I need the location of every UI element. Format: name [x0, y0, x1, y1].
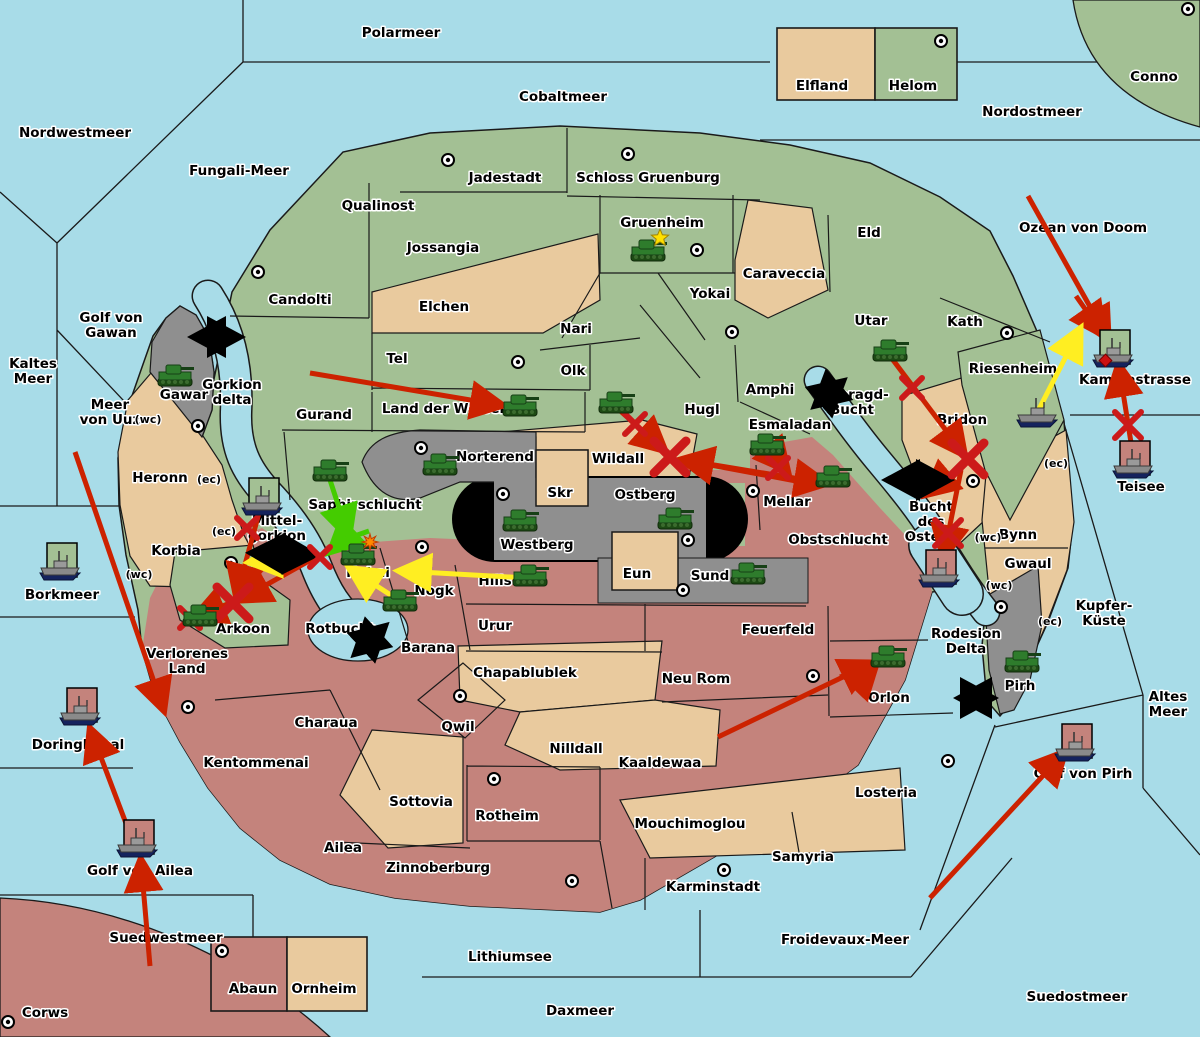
- strait-marker: (wc): [135, 413, 162, 426]
- strait-marker: (ec): [197, 473, 221, 486]
- territory-label-neu-rom: Neu Rom: [662, 671, 731, 687]
- territory-label-losteria: Losteria: [855, 785, 917, 801]
- territory-label-nari: Nari: [560, 321, 592, 337]
- territory-label-yokai: Yokai: [689, 286, 731, 302]
- territory-label-karminstadt: Karminstadt: [666, 879, 761, 895]
- territory-label-abaun: Abaun: [229, 981, 277, 997]
- city-kath: [1001, 327, 1013, 339]
- sea-label-fungali-meer: Fungali-Meer: [189, 163, 289, 179]
- territory-label-hugl: Hugl: [684, 402, 719, 418]
- territory-label-utar: Utar: [854, 313, 888, 329]
- city-zinnoberburg: [566, 875, 578, 887]
- territory-label-bynn: Bynn: [999, 527, 1037, 543]
- city-schloss-gruenburg: [622, 148, 634, 160]
- sea-label-doringkanal: Doringkanal: [32, 737, 124, 753]
- city-candolti: [252, 266, 264, 278]
- city-kentommenai: [182, 701, 194, 713]
- sea-label-cobaltmeer: Cobaltmeer: [519, 89, 607, 105]
- territory-label-gurand: Gurand: [296, 407, 352, 423]
- territory-label-sund: Sund: [691, 568, 730, 584]
- territory-label-samyria: Samyria: [772, 849, 834, 865]
- city-losteria: [942, 755, 954, 767]
- sea-label-golf-von-gawan: Golf vonGawan: [79, 310, 142, 341]
- city-karminstadt: [718, 864, 730, 876]
- city-arkoon: [225, 557, 237, 569]
- territory-label-obstschlucht: Obstschlucht: [788, 532, 888, 548]
- city-gawar: [192, 420, 204, 432]
- sea-label-nordostmeer: Nordostmeer: [982, 104, 1082, 120]
- territory-label-qwil: Qwil: [441, 719, 474, 735]
- territory-label-elfland: Elfland: [796, 78, 848, 94]
- territory-label-sottovia: Sottovia: [389, 794, 453, 810]
- territory-label-jadestadt: Jadestadt: [468, 170, 542, 186]
- sea-label-kaltes-meer: KaltesMeer: [9, 356, 57, 387]
- territory-label-eun: Eun: [623, 566, 651, 582]
- city-conno: [1182, 3, 1194, 15]
- territory-label-helom: Helom: [889, 78, 937, 94]
- sea-label-froidevaux-meer: Froidevaux-Meer: [781, 932, 909, 948]
- territory-label-feuerfeld: Feuerfeld: [742, 622, 815, 638]
- city-neu-rom: [807, 670, 819, 682]
- city-mellar: [747, 485, 759, 497]
- territory-label-gawar: Gawar: [160, 387, 209, 403]
- sea-label-altes-meer: AltesMeer: [1149, 689, 1188, 720]
- sea-label-ozean-von-doom: Ozean von Doom: [1019, 220, 1147, 236]
- territory-label-skr: Skr: [547, 485, 573, 501]
- territory-label-mouchimoglou: Mouchimoglou: [634, 816, 745, 832]
- sea-label-nordwestmeer: Nordwestmeer: [19, 125, 131, 141]
- territory-label-mellar: Mellar: [763, 494, 811, 510]
- sea-label-kupfer-k-ste: Kupfer-Küste: [1076, 598, 1133, 629]
- city-norterend: [415, 442, 427, 454]
- strait-marker: (wc): [986, 579, 1013, 592]
- territory-label-wildall: Wildall: [592, 451, 644, 467]
- territory-label-olk: Olk: [560, 363, 586, 379]
- strait-marker: (wc): [975, 531, 1002, 544]
- territory-label-gruenheim: Gruenheim: [620, 215, 704, 231]
- territory-label-tel: Tel: [386, 351, 407, 367]
- territory-label-schloss-gruenburg: Schloss Gruenburg: [576, 170, 720, 186]
- strait-marker: (ec): [1044, 457, 1068, 470]
- territory-label-ostberg: Ostberg: [614, 487, 675, 503]
- strait-marker: (ec): [1038, 615, 1062, 628]
- territory-label-amphi: Amphi: [746, 382, 794, 398]
- strait-connection-arrow: [254, 553, 312, 555]
- territory-label-pirh: Pirh: [1005, 678, 1036, 694]
- city-tel: [512, 356, 524, 368]
- sea-label-suedostmeer: Suedostmeer: [1027, 989, 1128, 1005]
- sea-label-kamalastrasse: Kamalastrasse: [1079, 372, 1191, 388]
- territory-label-gwaul: Gwaul: [1005, 556, 1052, 572]
- territory-label-zinnoberburg: Zinnoberburg: [386, 860, 490, 876]
- region-ornheim[interactable]: [287, 937, 367, 1011]
- sea-label-teisee: Teisee: [1117, 479, 1165, 495]
- city-qwil: [454, 690, 466, 702]
- city-gruenheim: [691, 244, 703, 256]
- territory-label-ailea: Ailea: [324, 840, 362, 856]
- territory-label-barana: Barana: [401, 640, 455, 656]
- territory-label-ornheim: Ornheim: [291, 981, 356, 997]
- territory-label-norterend: Norterend: [456, 449, 534, 465]
- territory-label-corws: Corws: [22, 1005, 68, 1021]
- territory-label-korbia: Korbia: [151, 543, 201, 559]
- territory-label-esmaladan: Esmaladan: [749, 417, 832, 433]
- territory-label-kaaldewaa: Kaaldewaa: [619, 755, 702, 771]
- territory-label-heronn: Heronn: [132, 470, 188, 486]
- territory-label-arkoon: Arkoon: [216, 621, 270, 637]
- city-sund: [677, 584, 689, 596]
- territory-label-candolti: Candolti: [268, 292, 331, 308]
- city-corws: [2, 1016, 14, 1028]
- territory-label-charaua: Charaua: [294, 715, 357, 731]
- territory-label-rotheim: Rotheim: [475, 808, 539, 824]
- strait-marker: (wc): [126, 568, 153, 581]
- city-abaun: [216, 945, 228, 957]
- territory-label-jossangia: Jossangia: [406, 240, 480, 256]
- territory-label-nogk: Nogk: [414, 583, 454, 599]
- territory-label-orlon: Orlon: [868, 690, 910, 706]
- territory-label-chapablublek: Chapablublek: [473, 665, 578, 681]
- sea-label-suedwestmeer: Suedwestmeer: [109, 930, 223, 946]
- territory-label-elchen: Elchen: [419, 299, 469, 315]
- territory-label-nilldall: Nilldall: [549, 741, 602, 757]
- sea-label-polarmeer: Polarmeer: [362, 25, 441, 41]
- city-jadestadt: [442, 154, 454, 166]
- sea-label-rotbucht: Rotbucht: [305, 621, 375, 637]
- explosion-icon: [362, 534, 378, 550]
- territory-label-kath: Kath: [947, 314, 983, 330]
- city-bridon: [967, 475, 979, 487]
- city-rotheim: [488, 773, 500, 785]
- sea-label-borkmeer: Borkmeer: [25, 587, 100, 603]
- city-ostberg: [682, 534, 694, 546]
- territory-label-caraveccia: Caraveccia: [743, 266, 825, 282]
- territory-label-westberg: Westberg: [500, 537, 573, 553]
- territory-label-saphirschlucht: Saphirschlucht: [308, 497, 422, 513]
- sea-label-daxmeer: Daxmeer: [546, 1003, 614, 1019]
- territory-label-qualinost: Qualinost: [342, 198, 415, 214]
- territory-label-riesenheim: Riesenheim: [969, 361, 1057, 377]
- city-pirh: [995, 601, 1007, 613]
- city-westberg: [497, 488, 509, 500]
- territory-label-urur: Urur: [478, 618, 512, 634]
- city-nogk: [416, 541, 428, 553]
- strait-marker: (ec): [212, 525, 236, 538]
- city-hugl: [726, 326, 738, 338]
- territory-label-kentommenai: Kentommenai: [203, 755, 308, 771]
- city-helom: [935, 35, 947, 47]
- sea-label-lithiumsee: Lithiumsee: [468, 949, 552, 965]
- territory-label-eld: Eld: [857, 225, 881, 241]
- territory-label-conno: Conno: [1130, 69, 1178, 85]
- map-canvas[interactable]: NordwestmeerPolarmeerCobaltmeerNordostme…: [0, 0, 1200, 1037]
- wargame-map: NordwestmeerPolarmeerCobaltmeerNordostme…: [0, 0, 1200, 1037]
